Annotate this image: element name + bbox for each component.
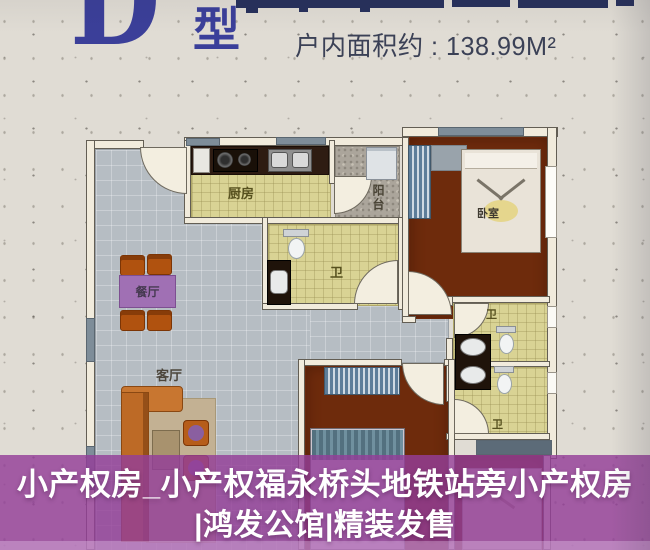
stove-burner — [217, 152, 233, 168]
unit-type-label: 型 — [193, 4, 240, 56]
dining-chair — [120, 255, 145, 276]
bathroom-middle-label: 卫 — [330, 262, 343, 281]
window — [547, 306, 557, 328]
unit-letter: D — [70, 0, 160, 64]
wardrobe — [408, 145, 431, 219]
bedroom-label: 卧室 — [477, 205, 499, 221]
toilet-bowl — [499, 334, 514, 354]
toilet-bowl — [497, 374, 512, 394]
toilet-bowl — [288, 238, 305, 259]
window — [545, 166, 557, 238]
sink-basin — [460, 366, 486, 384]
sink-basin — [271, 152, 288, 168]
cutoff-banner-text — [246, 8, 258, 13]
balcony-label: 阳台 — [370, 184, 387, 212]
window-segment — [476, 440, 552, 455]
wall — [402, 316, 416, 323]
kitchen-label: 厨房 — [206, 183, 276, 202]
cutoff-banner-text — [299, 8, 308, 12]
toilet-tank — [494, 366, 514, 373]
wall — [298, 359, 402, 366]
window — [547, 372, 557, 394]
wall — [446, 296, 550, 303]
living-label: 客厅 — [156, 365, 182, 384]
sink-basin — [460, 338, 486, 356]
bathroom-upper-label: 卫 — [486, 306, 497, 322]
sink-basin — [270, 270, 288, 294]
cushion — [188, 425, 204, 441]
window-segment — [186, 138, 220, 146]
window-segment — [438, 127, 524, 136]
sink-basin — [292, 152, 309, 168]
washing-machine — [366, 147, 397, 180]
cutoff-banner-text — [360, 8, 370, 12]
dining-label: 餐厅 — [135, 283, 159, 300]
bed-pillows — [465, 153, 537, 169]
bathroom-lower-label: 卫 — [492, 416, 503, 432]
wardrobe — [324, 367, 400, 395]
dining-chair — [147, 310, 172, 331]
wall — [446, 433, 550, 440]
window-segment — [276, 137, 326, 145]
wall — [184, 217, 404, 224]
dining-table: 餐厅 — [119, 275, 176, 308]
dining-chair — [120, 310, 145, 331]
photo-background: D 型 户内面积约 : 138.99M² — [0, 0, 650, 550]
stove-burner — [238, 153, 251, 166]
cutoff-banner-text — [452, 0, 510, 7]
window-segment — [86, 318, 95, 362]
fridge — [193, 148, 210, 173]
cutoff-banner-text — [236, 0, 444, 8]
toilet-tank — [283, 229, 309, 237]
caption-line-2: |鸿发公馆|精装发售 — [0, 500, 650, 544]
caption-line-1: 小产权房_小产权福永桥头地铁站旁小产权房 — [0, 459, 650, 504]
unit-area-text: 户内面积约 : 138.99M² — [295, 26, 556, 63]
cutoff-banner-text — [518, 0, 608, 8]
cutoff-banner-text — [616, 0, 634, 6]
dining-chair — [147, 254, 172, 275]
toilet-tank — [496, 326, 516, 333]
